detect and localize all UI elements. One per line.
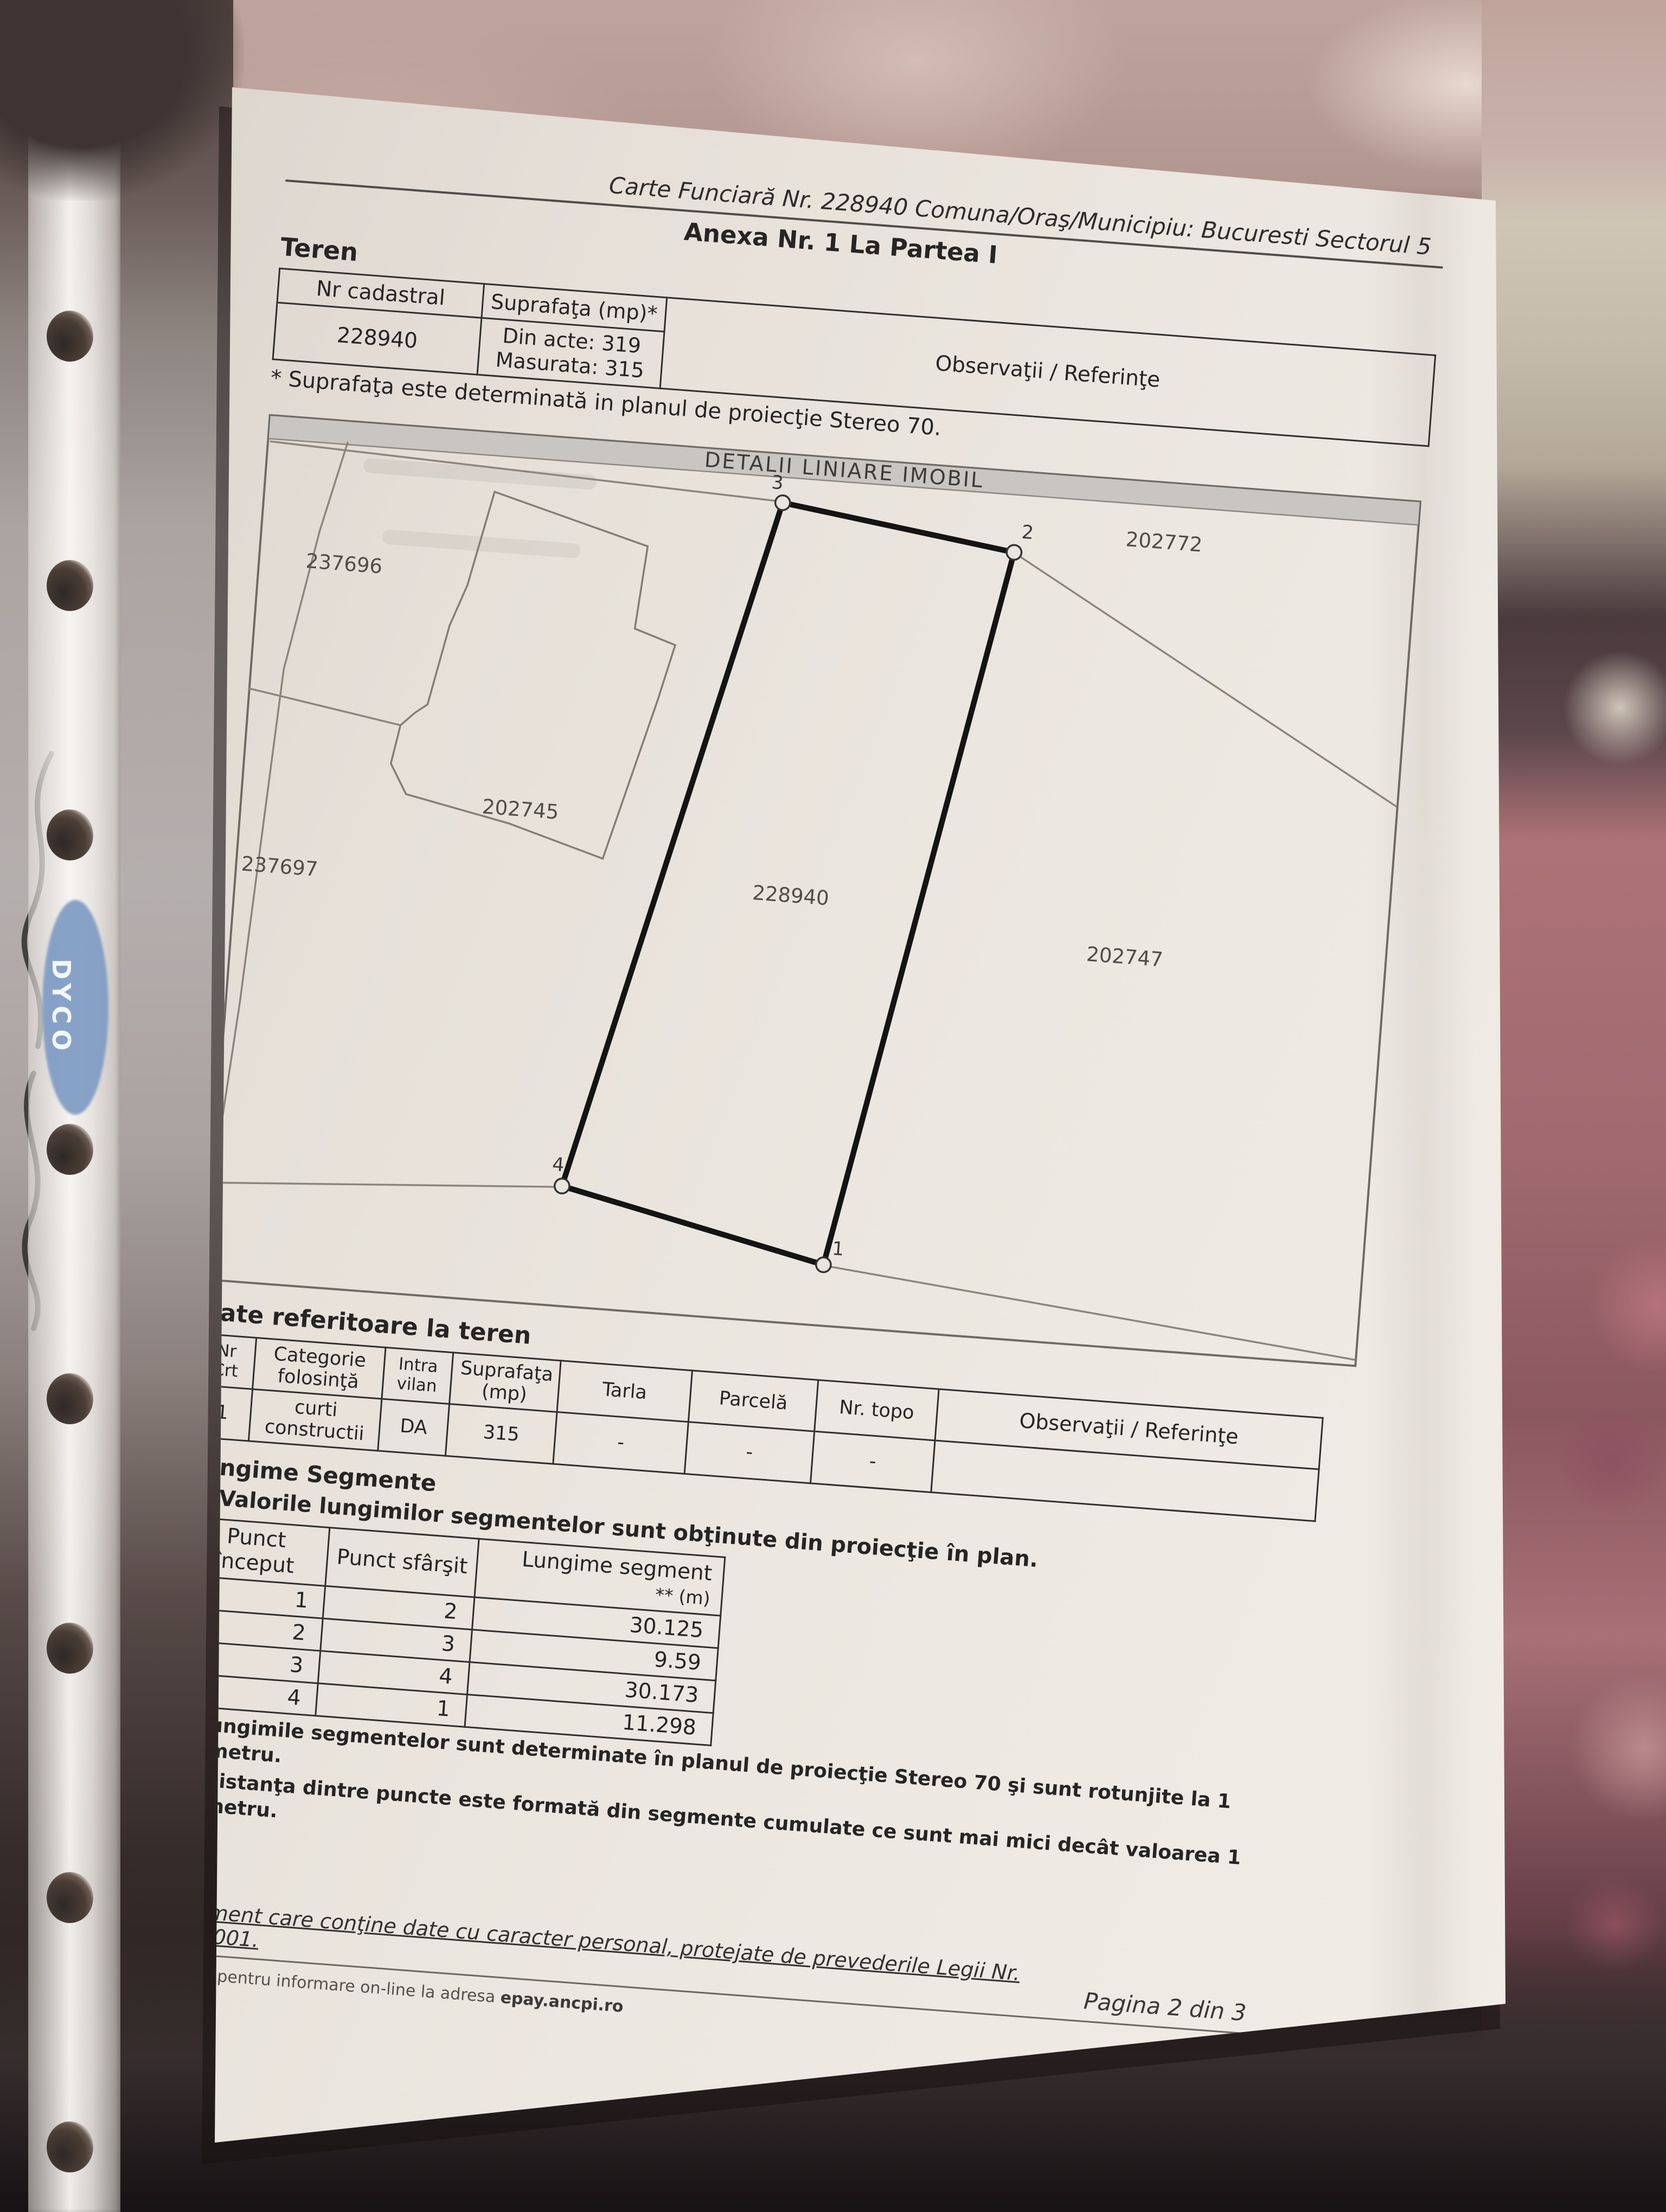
boundary-line xyxy=(216,436,348,1167)
photo-of-document: DYCO Carte Funciară Nr. 228940 Comuna/Or… xyxy=(0,0,1666,2212)
vertex-3-marker xyxy=(775,494,791,510)
shadow-blob xyxy=(0,0,244,201)
cadastral-sketch-panel: DETALII LINIARE IMOBIL xyxy=(202,413,1422,1370)
map-title: DETALII LINIARE IMOBIL xyxy=(703,447,985,493)
binder-hole xyxy=(47,1373,93,1424)
col-parcela: Parcelă xyxy=(688,1371,818,1432)
sheet-protector: DYCO xyxy=(28,0,120,2212)
binder-hole xyxy=(47,1124,93,1175)
col-suprafata2: Suprafaţa (mp) xyxy=(450,1352,561,1412)
col-categorie: Categorie folosinţă xyxy=(253,1338,386,1399)
binder-hole xyxy=(47,560,93,611)
document-page: Carte Funciară Nr. 228940 Comuna/Oraş/Mu… xyxy=(0,0,1666,2212)
parcel-228940-outline xyxy=(558,490,1016,1275)
vertex-2-marker xyxy=(1006,544,1022,560)
map-label-237697: 237697 xyxy=(241,852,319,880)
cell: DA xyxy=(378,1399,450,1456)
binder-hole xyxy=(47,1623,93,1674)
page-number: Pagina 2 din 3 xyxy=(1050,1985,1247,2027)
ghost-text xyxy=(363,458,597,490)
boundary-line xyxy=(213,1161,555,1208)
col-punct-sfarsit: Punct sfârşit xyxy=(325,1527,479,1597)
vertex-3-label: 3 xyxy=(771,472,784,494)
binder-hole xyxy=(47,809,93,860)
dyco-logo-text: DYCO xyxy=(0,974,169,1040)
ghost-text xyxy=(382,529,581,559)
vertex-2-label: 2 xyxy=(1021,521,1035,544)
map-label-228940: 228940 xyxy=(752,881,830,910)
map-label-237696: 237696 xyxy=(305,549,383,578)
vertex-1-label: 1 xyxy=(831,1238,845,1261)
cadastral-sketch: DETALII LINIARE IMOBIL xyxy=(203,413,1422,1368)
document-content: Carte Funciară Nr. 228940 Comuna/Oraş/Mu… xyxy=(116,81,1471,2094)
cell: - xyxy=(684,1422,815,1483)
map-label-202772: 202772 xyxy=(1125,528,1203,556)
vertex-4-label: 4 xyxy=(552,1154,565,1176)
boundary-line xyxy=(247,688,402,725)
cell: - xyxy=(553,1412,688,1474)
vertex-4-marker xyxy=(554,1178,570,1194)
cell: - xyxy=(810,1431,935,1492)
cell: curti constructii xyxy=(248,1389,381,1450)
binder-hole xyxy=(47,1872,93,1923)
vertex-1-marker xyxy=(816,1257,831,1272)
boundary-line xyxy=(1004,557,1413,807)
col-nr-topo: Nr. topo xyxy=(815,1380,939,1441)
col-intravilan: Intra vilan xyxy=(382,1347,453,1404)
binder-hole xyxy=(47,311,93,362)
floral-fabric-right xyxy=(1482,0,1666,2212)
binder-hole xyxy=(47,2121,93,2172)
cell: 315 xyxy=(445,1404,557,1464)
map-label-202747: 202747 xyxy=(1086,942,1164,971)
col-tarla: Tarla xyxy=(557,1360,692,1422)
segments-table: Punct început Punct sfârşit Lungime segm… xyxy=(171,1516,726,1747)
extras-site: epay.ancpi.ro xyxy=(499,1989,624,2017)
